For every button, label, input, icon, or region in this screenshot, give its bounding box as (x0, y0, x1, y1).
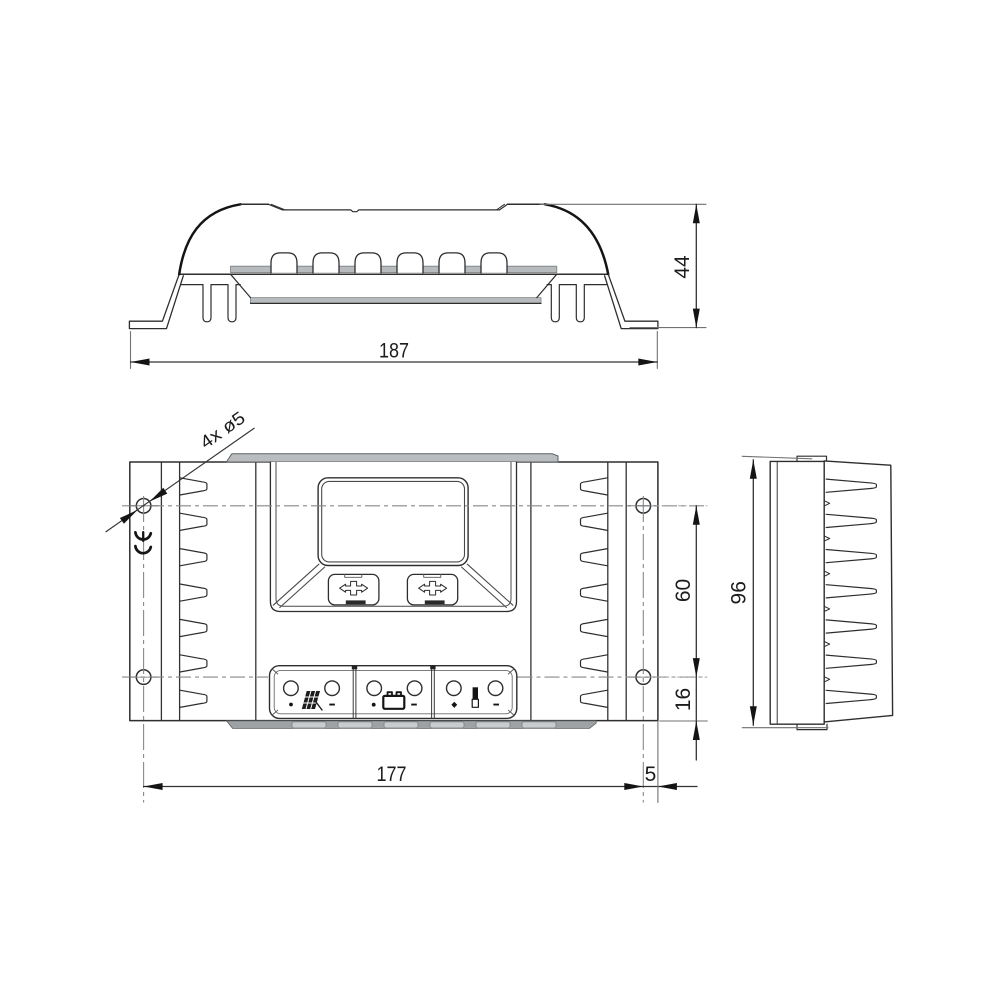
svg-text:60: 60 (672, 579, 695, 602)
svg-text:16: 16 (672, 688, 695, 711)
svg-text:177: 177 (377, 763, 407, 786)
svg-text:44: 44 (671, 255, 694, 279)
svg-text:187: 187 (379, 340, 409, 363)
svg-text:5: 5 (645, 763, 657, 786)
svg-text:96: 96 (728, 581, 751, 604)
